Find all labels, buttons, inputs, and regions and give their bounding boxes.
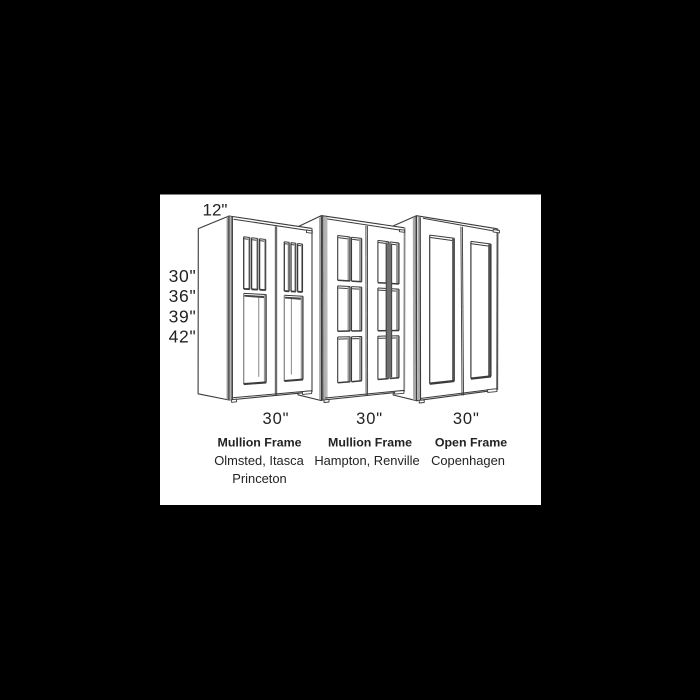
svg-text:39": 39" (169, 306, 197, 326)
svg-text:Mullion Frame: Mullion Frame (328, 436, 412, 450)
svg-text:12": 12" (203, 201, 228, 220)
svg-text:30": 30" (263, 410, 290, 428)
svg-text:Princeton: Princeton (232, 471, 286, 486)
svg-text:30": 30" (453, 410, 480, 428)
svg-text:Mullion Frame: Mullion Frame (218, 436, 302, 450)
svg-text:36": 36" (169, 286, 197, 306)
svg-text:Copenhagen: Copenhagen (431, 453, 505, 468)
svg-text:30": 30" (356, 410, 383, 428)
svg-text:42": 42" (169, 327, 197, 347)
svg-text:Olmsted, Itasca: Olmsted, Itasca (214, 453, 304, 468)
svg-text:30": 30" (169, 266, 197, 286)
svg-text:Open Frame: Open Frame (435, 436, 507, 450)
svg-text:Hampton, Renville: Hampton, Renville (314, 453, 419, 468)
